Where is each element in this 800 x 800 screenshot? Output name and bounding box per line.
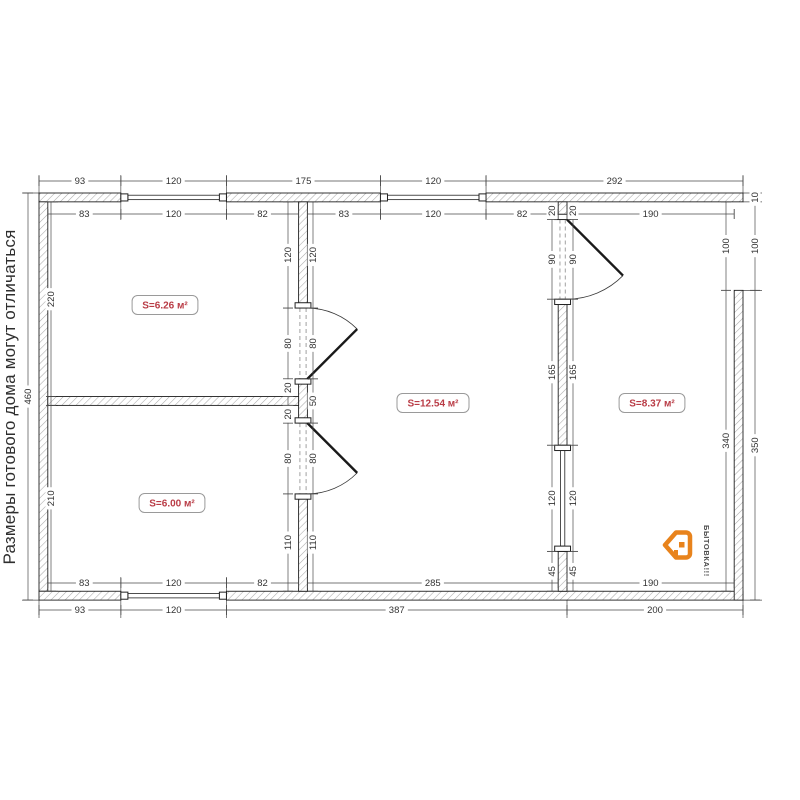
dimension-chain: 190 — [567, 578, 734, 590]
wall-segment — [226, 193, 380, 202]
wall-segment — [299, 379, 308, 423]
dimension-label: 90 — [568, 254, 579, 265]
dimension-label: 100 — [750, 238, 761, 254]
dimension-label: 190 — [643, 578, 659, 589]
dimension-chain: 10100350 — [750, 189, 762, 600]
opening-cap — [479, 194, 486, 201]
house-dot — [679, 542, 685, 548]
dimension-label: 10 — [750, 192, 761, 203]
dimension-label: 387 — [389, 605, 405, 616]
dimension-label: 45 — [547, 566, 558, 577]
dimension-chain: 460 — [23, 193, 35, 600]
dimension-chain: 93120175120292 — [39, 176, 743, 188]
opening-cap — [219, 194, 226, 201]
opening-cap — [295, 379, 311, 384]
opening-cap — [295, 418, 311, 423]
dimension-label: 210 — [46, 490, 57, 506]
disclaimer-note: Размеры готового дома могут отличаться — [0, 187, 22, 607]
dimension-label: 120 — [166, 176, 182, 187]
dimension-chain: 8312082 — [48, 578, 299, 590]
window-glazing — [387, 195, 479, 199]
dimension-label: 80 — [308, 453, 319, 464]
brand-logo: БЫТОВКА!!! — [660, 524, 716, 572]
opening-cap — [295, 303, 311, 308]
dimension-label: 460 — [23, 389, 34, 405]
dimension-label: 82 — [257, 578, 268, 589]
wall-segment — [39, 193, 121, 202]
dimension-label: 82 — [517, 209, 528, 220]
room-area-label: S=8.37 м² — [629, 399, 675, 410]
dimension-label: 200 — [647, 605, 663, 616]
dimension-chain: 93120387200 — [39, 605, 743, 617]
dimension-chain: 120805080110 — [308, 202, 320, 591]
dimension-label: 83 — [79, 578, 90, 589]
dimension-label: 93 — [75, 605, 86, 616]
dimension-label: 190 — [643, 209, 659, 220]
wall-segment — [299, 202, 308, 308]
dimension-label: 50 — [308, 396, 319, 407]
dimension-label: 83 — [79, 209, 90, 220]
dimension-label: 120 — [547, 490, 558, 506]
room-area-label: S=6.00 м² — [149, 499, 195, 510]
dimension-label: 340 — [721, 433, 732, 449]
door-swing-arc — [307, 473, 357, 494]
house-notch — [674, 550, 678, 557]
dimension-label: 120 — [166, 578, 182, 589]
dimension-label: 90 — [547, 254, 558, 265]
window-glazing — [560, 451, 564, 547]
dimension-label: 20 — [547, 205, 558, 216]
opening-cap — [295, 494, 311, 499]
window-glazing — [128, 593, 220, 597]
floor-plan-canvas: 9312017512029283120828312082190831208228… — [0, 0, 800, 800]
opening-cap — [121, 194, 128, 201]
dimension-label: 80 — [283, 338, 294, 349]
door-openings — [300, 220, 565, 494]
opening-cap — [555, 546, 571, 551]
dimension-label: 82 — [257, 209, 268, 220]
dimension-chain: 209016512045 — [547, 202, 559, 591]
room-area-label: S=12.54 м² — [407, 399, 459, 410]
wall-segment — [39, 591, 121, 600]
dimension-label: 120 — [308, 247, 319, 263]
wall-segment — [558, 551, 567, 591]
dimension-label: 120 — [283, 247, 294, 263]
dimension-chain: 285 — [307, 578, 558, 590]
dimension-chain: 8312082 — [48, 209, 299, 221]
dimension-label: 20 — [283, 409, 294, 420]
dimension-chain: 100340 — [721, 202, 733, 591]
floor-plan-drawing: 9312017512029283120828312082190831208228… — [0, 0, 800, 800]
dimension-label: 80 — [283, 453, 294, 464]
wall-segment — [299, 494, 308, 591]
dimension-label: 20 — [568, 205, 579, 216]
dimension-label: 45 — [568, 566, 579, 577]
room-area-label: S=6.26 м² — [142, 301, 188, 312]
dimension-label: 175 — [296, 176, 312, 187]
wall-segment — [734, 290, 743, 600]
opening-cap — [219, 592, 226, 599]
dimension-label: 120 — [166, 209, 182, 220]
dimension-label: 350 — [750, 437, 761, 453]
dimension-label: 285 — [425, 578, 441, 589]
dimension-label: 292 — [607, 176, 623, 187]
dimension-label: 120 — [568, 490, 579, 506]
dimension-chain: 190 — [567, 209, 734, 221]
dimension-chain: 209016512045 — [568, 202, 580, 591]
opening-cap — [121, 592, 128, 599]
opening-cap — [380, 194, 387, 201]
brand-logo-text: БЫТОВКА!!! — [699, 525, 711, 577]
dimension-label: 165 — [568, 364, 579, 380]
dimension-label: 100 — [721, 238, 732, 254]
dimension-label: 83 — [339, 209, 350, 220]
wall-segment — [558, 299, 567, 445]
dimension-label: 93 — [75, 176, 86, 187]
dimension-label: 110 — [283, 535, 294, 550]
wall-segment — [486, 193, 743, 202]
house-tag-icon — [662, 526, 694, 564]
wall-segment — [48, 397, 299, 406]
opening-cap — [555, 299, 571, 304]
dimension-label: 165 — [547, 364, 558, 380]
dimension-label: 120 — [425, 176, 441, 187]
dimension-label: 20 — [283, 382, 294, 393]
dimension-label: 110 — [308, 535, 319, 550]
door-swing-arc — [567, 276, 623, 300]
opening-cap — [555, 445, 571, 450]
dimension-chain: 8312082 — [307, 209, 558, 221]
dimension-label: 220 — [46, 291, 57, 307]
dimension-label: 120 — [166, 605, 182, 616]
dimension-chain: 12080202080110 — [283, 202, 295, 591]
dimension-label: 120 — [425, 209, 441, 220]
door-swing-arc — [307, 308, 357, 329]
wall-segment — [226, 591, 743, 600]
dimension-label: 80 — [308, 338, 319, 349]
window-glazing — [128, 195, 220, 199]
